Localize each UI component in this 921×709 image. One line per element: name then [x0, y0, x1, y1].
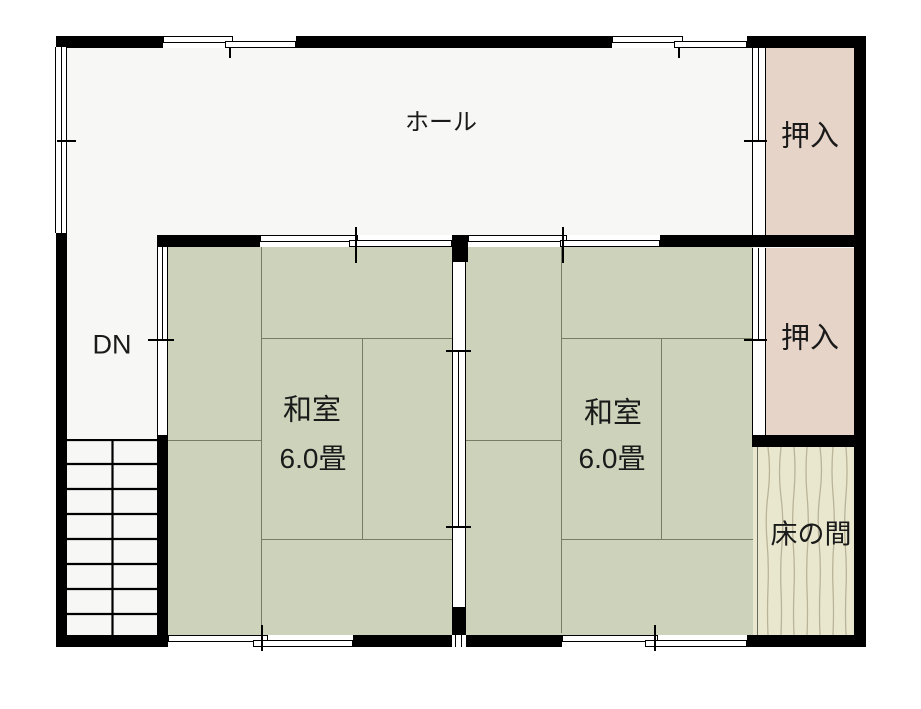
- door-pane: [260, 235, 358, 242]
- door-pane: [560, 240, 660, 247]
- door-pane-line: [162, 247, 163, 341]
- window-pane: [645, 640, 747, 647]
- tatami-line: [661, 338, 662, 539]
- window-pane: [225, 41, 296, 48]
- window-pane: [163, 36, 233, 43]
- tokonoma-label: 床の間: [771, 522, 852, 549]
- door-center-tick: [562, 227, 564, 263]
- wall-segment: [296, 36, 612, 48]
- window-pane: [253, 640, 353, 647]
- hall-label: ホール: [405, 111, 477, 135]
- wall-segment: [752, 435, 866, 447]
- door-center-tick: [355, 227, 357, 263]
- wall-segment: [854, 36, 866, 647]
- wall-segment: [747, 36, 866, 48]
- window-pane: [674, 41, 747, 48]
- threshold-line: [461, 635, 462, 647]
- tatami-line: [362, 338, 363, 539]
- tatami-line: [561, 539, 753, 540]
- japanese-room-1-size: 6.0畳: [280, 445, 347, 473]
- threshold-line: [455, 635, 456, 647]
- door-center-tick: [148, 339, 174, 341]
- window-pane: [562, 635, 658, 642]
- closet-top-label: 押入: [781, 123, 839, 152]
- wall-segment: [56, 36, 67, 47]
- japanese-room-2-label: 和室: [584, 400, 642, 429]
- wall-segment: [747, 635, 866, 647]
- wall-segment: [157, 435, 168, 647]
- wall-segment: [56, 635, 168, 647]
- window-pane: [612, 36, 683, 43]
- wall-segment: [353, 635, 452, 647]
- tatami-line: [561, 338, 753, 339]
- stairs-symbol: [67, 439, 157, 635]
- japanese-room-2-floor: [466, 247, 753, 635]
- tatami-line: [261, 247, 262, 633]
- floor-plan: ホール DN 和室 6.0畳 和室 6.0畳 押入 押入 床の間: [0, 0, 921, 709]
- door-center-tick: [446, 526, 471, 528]
- wall-post: [452, 607, 466, 635]
- door-pane-line: [758, 48, 759, 141]
- door-pane: [349, 240, 452, 247]
- tatami-line: [261, 338, 452, 339]
- tatami-line: [261, 539, 452, 540]
- tatami-line: [168, 440, 261, 441]
- threshold-gap: [452, 635, 466, 647]
- door-center-tick: [744, 140, 767, 142]
- window-center-tick: [229, 47, 231, 58]
- stairs-dn-label: DN: [93, 332, 132, 359]
- sliding-door-symbol: [157, 247, 168, 435]
- japanese-room-2-size: 6.0畳: [579, 445, 646, 473]
- window-center-tick: [678, 47, 680, 58]
- tatami-line: [561, 247, 562, 633]
- door-pane-line: [458, 351, 459, 527]
- door-center-tick: [744, 339, 767, 341]
- wall-segment: [466, 635, 562, 647]
- sliding-door-symbol: [752, 248, 766, 435]
- tatami-line: [466, 440, 561, 441]
- tokonoma-edge-line: [757, 447, 758, 635]
- window-center-tick: [261, 625, 263, 651]
- door-pane-line: [758, 248, 759, 341]
- door-pane: [468, 235, 567, 242]
- closet-middle-label: 押入: [781, 325, 839, 354]
- sliding-door-symbol: [468, 235, 660, 247]
- wall-segment: [56, 36, 163, 48]
- fusuma-divider-symbol: [452, 262, 466, 607]
- wall-post: [452, 235, 468, 262]
- japanese-room-1-floor: [168, 247, 452, 635]
- wall-segment: [157, 235, 260, 247]
- wall-segment: [660, 235, 866, 247]
- wall-segment: [56, 233, 67, 647]
- window-symbol: [612, 36, 747, 48]
- window-center-tick: [57, 140, 76, 142]
- sliding-door-symbol: [752, 48, 766, 235]
- door-center-tick: [446, 350, 471, 352]
- window-center-tick: [654, 625, 656, 651]
- japanese-room-1-label: 和室: [283, 397, 341, 426]
